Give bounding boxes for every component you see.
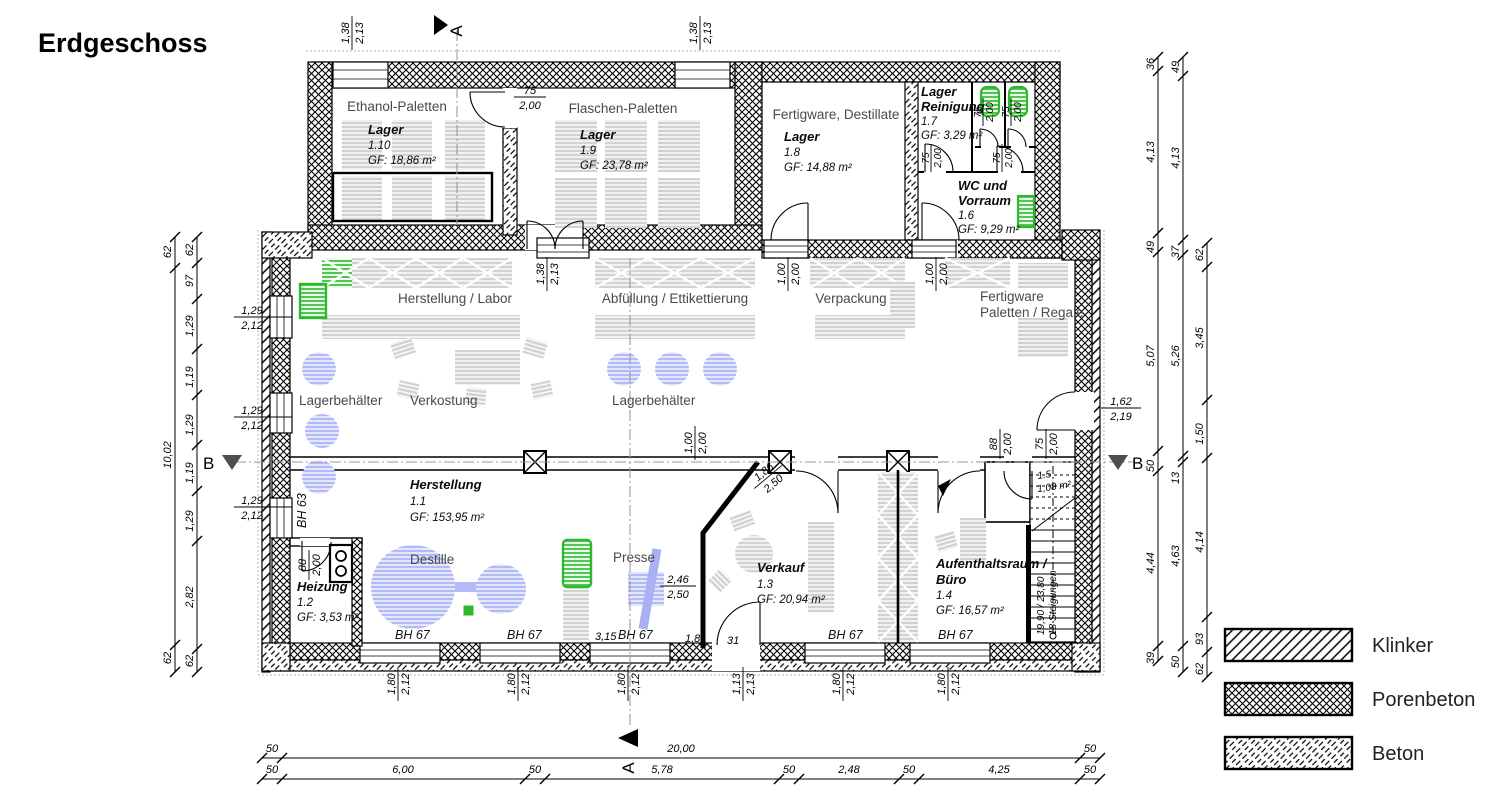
dim-bottom-window-3: 1,802,12 [616,667,642,701]
tank [607,352,641,386]
shelf-partition [878,470,918,643]
svg-text:1,80: 1,80 [386,672,398,694]
svg-text:2,00: 2,00 [1002,432,1014,455]
svg-text:GF: 3,53 m²: GF: 3,53 m² [297,612,360,624]
svg-text:2,82: 2,82 [184,586,196,608]
svg-text:Vorraum: Vorraum [958,193,1011,208]
section-b-left-label: B [203,454,214,473]
svg-text:75: 75 [992,152,1003,164]
svg-text:36: 36 [1145,57,1157,70]
dim-chain-right-2: 49 4,13 37 5,26 13 4,63 50 [1170,52,1188,677]
svg-text:GF: 20,94 m²: GF: 20,94 m² [757,594,826,606]
dim-hall-window-1: 1,382,13 [535,257,561,291]
svg-text:2,00: 2,00 [985,102,996,123]
svg-text:2,12: 2,12 [630,673,642,695]
zone-flaschen: Flaschen-Paletten [569,101,678,116]
legend-label: Porenbeton [1372,689,1475,711]
svg-text:1,62: 1,62 [1110,396,1131,408]
dim-chain-bottom-detail: 50 6,00 50 5,78 50 2,48 50 4,25 50 [257,764,1105,784]
zone-fertigware-dest: Fertigware, Destillate [773,107,900,122]
svg-text:75: 75 [973,106,984,118]
svg-text:1,80: 1,80 [616,672,628,694]
svg-text:2,00: 2,00 [1004,148,1015,169]
svg-text:2,13: 2,13 [702,21,714,44]
svg-text:1.3: 1.3 [757,579,774,591]
fridge-icon [300,284,326,318]
svg-text:2,48: 2,48 [837,764,860,776]
svg-text:4,13: 4,13 [1170,146,1182,168]
zone-herstellung-labor: Herstellung / Labor [398,291,513,306]
zone-fertigware-2: Paletten / Regale [980,305,1084,320]
zone-lagerbehaelter-1: Lagerbehälter [299,393,383,408]
svg-text:2,19: 2,19 [1109,411,1131,423]
stairs-labels: 19,90 / 23,80 18 Steigungen [1036,570,1059,635]
svg-text:BH 67: BH 67 [828,628,864,642]
room-1-5-walls [985,462,1030,522]
svg-text:1,50: 1,50 [1194,422,1206,444]
svg-text:2,13: 2,13 [354,21,366,44]
svg-text:2,12: 2,12 [240,320,262,332]
svg-text:1,29: 1,29 [184,315,196,336]
svg-text:1,38: 1,38 [535,262,547,284]
dim-top-window-1: 1,382,13 [340,16,366,50]
svg-text:Lager: Lager [784,129,820,144]
legend-item-porenbeton: Porenbeton [1225,683,1475,715]
stove-icon [330,545,352,582]
svg-text:37: 37 [1170,245,1182,258]
legend-label: Beton [1372,743,1424,765]
svg-text:93: 93 [1194,632,1206,645]
svg-text:2,00: 2,00 [938,262,950,285]
section-a-top-label: A [447,25,466,37]
svg-text:3,45: 3,45 [1194,326,1206,348]
svg-text:39: 39 [1145,652,1157,664]
svg-text:1,38: 1,38 [340,21,352,43]
zone-presse: Presse [613,550,655,565]
svg-text:5,07: 5,07 [1145,344,1157,366]
svg-text:62: 62 [162,246,174,258]
window [805,643,885,663]
svg-text:5,78: 5,78 [651,764,673,776]
svg-text:1,29: 1,29 [241,495,262,507]
svg-text:2,00: 2,00 [933,148,944,169]
svg-text:BH 67: BH 67 [507,628,543,642]
window [333,62,388,88]
zone-verpackung: Verpackung [815,291,886,306]
svg-text:Verkauf: Verkauf [757,560,806,575]
svg-text:1,29: 1,29 [184,510,196,531]
svg-text:62: 62 [1194,663,1206,675]
svg-text:BH 67: BH 67 [938,628,974,642]
dim-mid-door-2: 882,00 [988,429,1014,459]
svg-text:1,29: 1,29 [241,305,262,317]
svg-text:1,13: 1,13 [731,672,743,694]
svg-text:13: 13 [1170,471,1182,484]
section-a-bottom-label: A [619,762,638,774]
beton-swatch-icon [1225,737,1352,769]
svg-text:1,19: 1,19 [184,366,196,387]
svg-text:2,00: 2,00 [311,553,323,576]
svg-text:4,25: 4,25 [988,764,1010,776]
svg-text:1,80: 1,80 [936,672,948,694]
svg-text:1,38: 1,38 [688,21,700,43]
svg-text:20,00: 20,00 [666,743,695,755]
legend: Klinker Porenbeton Beton [1225,629,1475,769]
svg-text:2,12: 2,12 [240,510,262,522]
svg-text:18 Steigungen: 18 Steigungen [1048,570,1059,635]
svg-text:1.7: 1.7 [921,116,938,128]
dim-18: 1,8 [685,633,701,645]
dim-chain-right-3: 62 3,45 1,50 4,14 93 62 [1194,238,1212,682]
still-condenser [476,564,526,614]
legend-item-klinker: Klinker [1225,629,1433,661]
svg-text:GF: 16,57 m²: GF: 16,57 m² [936,605,1005,617]
svg-text:2,12: 2,12 [240,420,262,432]
svg-text:50: 50 [1084,743,1097,755]
legend-label: Klinker [1372,635,1433,657]
svg-text:19,90 / 23,80: 19,90 / 23,80 [1036,576,1047,635]
svg-text:Lager: Lager [921,84,957,99]
svg-text:2,12: 2,12 [845,673,857,695]
svg-text:4,13: 4,13 [1145,140,1157,162]
svg-text:Büro: Büro [936,572,966,587]
svg-text:75: 75 [524,85,537,97]
window [910,643,990,663]
svg-text:1,00: 1,00 [776,262,788,284]
window [912,240,956,258]
legend-item-beton: Beton [1225,737,1424,769]
room-16: WC und Vorraum 1.6 GF: 9,29 m² [958,178,1021,236]
svg-text:75: 75 [921,152,932,164]
svg-text:1,29: 1,29 [184,414,196,435]
svg-text:GF: 3,29 m²: GF: 3,29 m² [921,130,984,142]
klinker-swatch-icon [1225,629,1352,661]
svg-text:4,63: 4,63 [1170,544,1182,566]
tank [655,352,689,386]
dim-presse: 2,462,50 [660,574,696,601]
svg-text:Lager: Lager [580,127,616,142]
dim-flaschen-door: 752,00 [514,85,546,112]
window [480,643,560,663]
svg-text:Herstellung: Herstellung [410,477,482,492]
section-b-right-label: B [1132,454,1143,473]
svg-text:2,12: 2,12 [520,673,532,695]
svg-text:97: 97 [184,274,196,287]
zone-fertigware-1: Fertigware [980,289,1044,304]
svg-text:2,00: 2,00 [1013,102,1024,123]
dim-mid-door-3: 752,00 [1034,429,1060,459]
dim-315: 3,15 [595,631,617,643]
door-opening [1073,392,1094,430]
dim-heizung-door: 882,00 [297,550,323,580]
section-a-bottom-icon [618,729,638,747]
svg-text:4,44: 4,44 [1145,552,1157,573]
svg-text:1.5: 1.5 [1037,469,1053,482]
window [764,240,808,258]
dim-bottom-window-5: 1,802,12 [831,667,857,701]
tank [302,460,336,494]
dim-bottom-window-2: 1,802,12 [506,667,532,701]
porenbeton-swatch-icon [1225,683,1352,715]
svg-text:10,02: 10,02 [162,441,174,469]
door-opening [503,88,517,128]
svg-text:GF: 18,86 m²: GF: 18,86 m² [368,155,437,167]
svg-text:88: 88 [988,437,1000,450]
svg-text:1,29: 1,29 [241,405,262,417]
zone-destille: Destille [410,552,454,567]
svg-text:75: 75 [1034,437,1046,450]
green-box-icon [464,606,473,615]
svg-text:1.1: 1.1 [410,496,426,508]
svg-text:2,50: 2,50 [666,589,689,601]
svg-text:Heizung: Heizung [297,579,348,594]
dim-top-window-2: 1,382,13 [688,16,714,50]
tank [302,352,336,386]
svg-text:6,00: 6,00 [392,764,414,776]
svg-text:BH 67: BH 67 [618,628,654,642]
svg-text:1.4: 1.4 [936,590,952,602]
svg-text:50: 50 [266,743,279,755]
svg-text:88: 88 [297,558,309,571]
svg-text:50: 50 [903,764,916,776]
svg-text:2,00: 2,00 [1048,432,1060,455]
svg-text:50: 50 [1170,655,1182,668]
svg-text:GF: 23,78 m²: GF: 23,78 m² [580,160,649,172]
svg-text:2,00: 2,00 [518,100,541,112]
svg-text:50: 50 [1084,764,1097,776]
dim-bottom-window-6: 1,802,12 [936,667,962,701]
room-12: Heizung 1.2 GF: 3,53 m² [297,579,360,624]
zone-lagerbehaelter-2: Lagerbehälter [612,393,696,408]
svg-text:WC und: WC und [958,178,1008,193]
svg-text:50: 50 [266,764,279,776]
zone-ethanol: Ethanol-Paletten [347,99,447,114]
svg-text:1.2: 1.2 [297,597,314,609]
svg-text:2,13: 2,13 [549,262,561,285]
window [270,498,292,538]
svg-text:62: 62 [162,652,174,664]
window [537,238,589,258]
svg-text:5,26: 5,26 [1170,344,1182,366]
svg-text:Aufenthaltsraum /: Aufenthaltsraum / [935,556,1048,571]
svg-text:2,00: 2,00 [697,431,709,454]
dim-mid-door-1: 1,002,00 [683,426,709,460]
svg-text:49: 49 [1145,241,1157,253]
svg-text:BH 67: BH 67 [395,628,431,642]
svg-text:50: 50 [529,764,542,776]
svg-text:1,80: 1,80 [506,672,518,694]
dim-wc-door-4: 752,00 [992,144,1015,172]
sink-icon [1018,196,1034,227]
svg-text:1.8: 1.8 [784,147,801,159]
svg-text:50: 50 [783,764,796,776]
svg-text:1,19: 1,19 [184,462,196,483]
svg-text:GF: 153,95 m²: GF: 153,95 m² [410,512,485,524]
room-11: Herstellung 1.1 GF: 153,95 m² [410,477,485,524]
svg-text:62: 62 [184,655,196,667]
svg-text:2,46: 2,46 [666,574,689,586]
svg-text:1,00: 1,00 [683,431,695,453]
dim-chain-right-1: 36 4,13 49 5,07 50 4,44 39 [1145,52,1163,666]
window [270,393,292,433]
svg-text:75: 75 [1001,106,1012,118]
svg-text:1.6: 1.6 [958,210,975,222]
dim-bottom-window-1: 1,802,12 [386,667,412,701]
svg-text:GF: 14,88 m²: GF: 14,88 m² [784,162,853,174]
zone-verkostung: Verkostung [410,393,478,408]
svg-text:2,12: 2,12 [950,673,962,695]
svg-text:4,14: 4,14 [1194,531,1206,552]
window [675,62,730,88]
svg-text:49: 49 [1170,61,1182,73]
room-18: Lager 1.8 GF: 14,88 m² [784,129,853,174]
zone-abfuellung: Abfüllung / Ettikettierung [602,291,748,306]
dim-chain-left-outer: 62 10,02 62 [162,232,180,677]
washer-icon [563,540,591,587]
tank [703,352,737,386]
section-a-top-icon [434,15,448,35]
svg-text:62: 62 [184,244,196,256]
svg-text:2,12: 2,12 [400,673,412,695]
svg-text:62: 62 [1194,249,1206,261]
dim-right-door: 1,622,19 [1101,396,1141,423]
svg-text:1.9: 1.9 [580,145,597,157]
svg-text:GF: 9,29 m²: GF: 9,29 m² [958,224,1021,236]
svg-text:Lager: Lager [368,122,404,137]
dim-chain-bottom-total: 50 20,00 50 [257,743,1105,763]
dim-entry-door: 1,132,13 [731,667,757,701]
dim-31: 31 [727,635,739,647]
svg-text:1.10: 1.10 [368,140,391,152]
dim-chain-left-inner: 62 97 1,29 1,19 1,29 1,19 1,29 2,82 62 [184,232,202,677]
svg-text:1,80: 1,80 [831,672,843,694]
tank [305,414,339,448]
svg-text:1,00: 1,00 [924,262,936,284]
page-title: Erdgeschoss [38,28,208,58]
svg-text:BH 63: BH 63 [295,493,309,528]
svg-text:2,13: 2,13 [745,672,757,695]
floorplan-page: Erdgeschoss [0,0,1500,793]
floorplan-drawing: Erdgeschoss [0,0,1500,793]
dim-hall-window-2: 1,002,00 [776,257,802,291]
svg-text:50: 50 [1145,459,1157,472]
window [360,643,440,663]
svg-text:2,00: 2,00 [790,262,802,285]
